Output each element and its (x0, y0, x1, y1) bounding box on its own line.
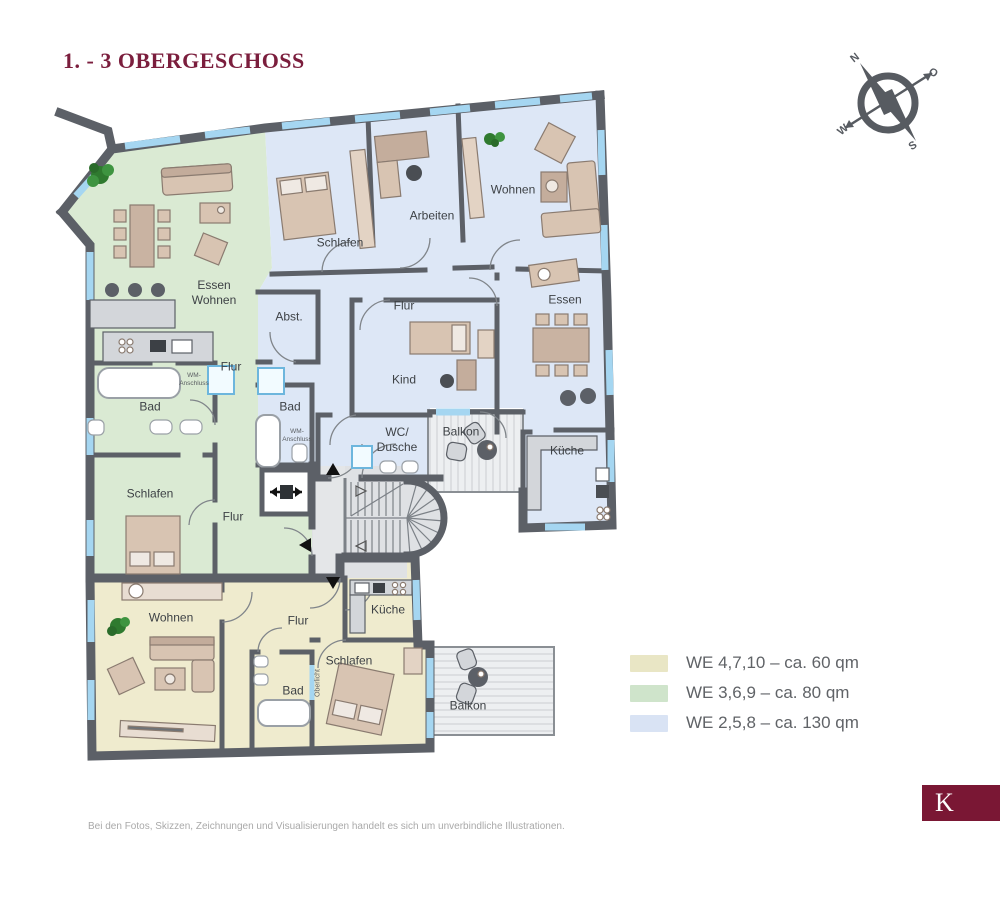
balcony-bottom (430, 647, 554, 735)
disclaimer-text: Bei den Fotos, Skizzen, Zeichnungen und … (88, 821, 565, 832)
compass-rose: N O W S (835, 51, 940, 153)
legend-label-we130: WE 2,5,8 – ca. 130 qm (686, 713, 859, 733)
compass-label-north: N (848, 51, 862, 65)
company-logo-letter: K (935, 790, 954, 816)
company-logo: K (922, 785, 1000, 821)
legend: WE 4,7,10 – ca. 60 qm WE 3,6,9 – ca. 80 … (630, 648, 859, 738)
floor-plan: N O W S (0, 0, 1000, 898)
compass-label-south: S (907, 139, 920, 153)
legend-label-we80: WE 3,6,9 – ca. 80 qm (686, 683, 849, 703)
legend-item-we60: WE 4,7,10 – ca. 60 qm (630, 648, 859, 678)
floorplan-page: 1. - 3 OBERGESCHOSS (0, 0, 1000, 898)
legend-swatch-we60 (630, 655, 668, 672)
legend-item-we130: WE 2,5,8 – ca. 130 qm (630, 708, 859, 738)
legend-item-we80: WE 3,6,9 – ca. 80 qm (630, 678, 859, 708)
elevator (262, 470, 310, 514)
legend-label-we60: WE 4,7,10 – ca. 60 qm (686, 653, 859, 673)
legend-swatch-we130 (630, 715, 668, 732)
legend-swatch-we80 (630, 685, 668, 702)
